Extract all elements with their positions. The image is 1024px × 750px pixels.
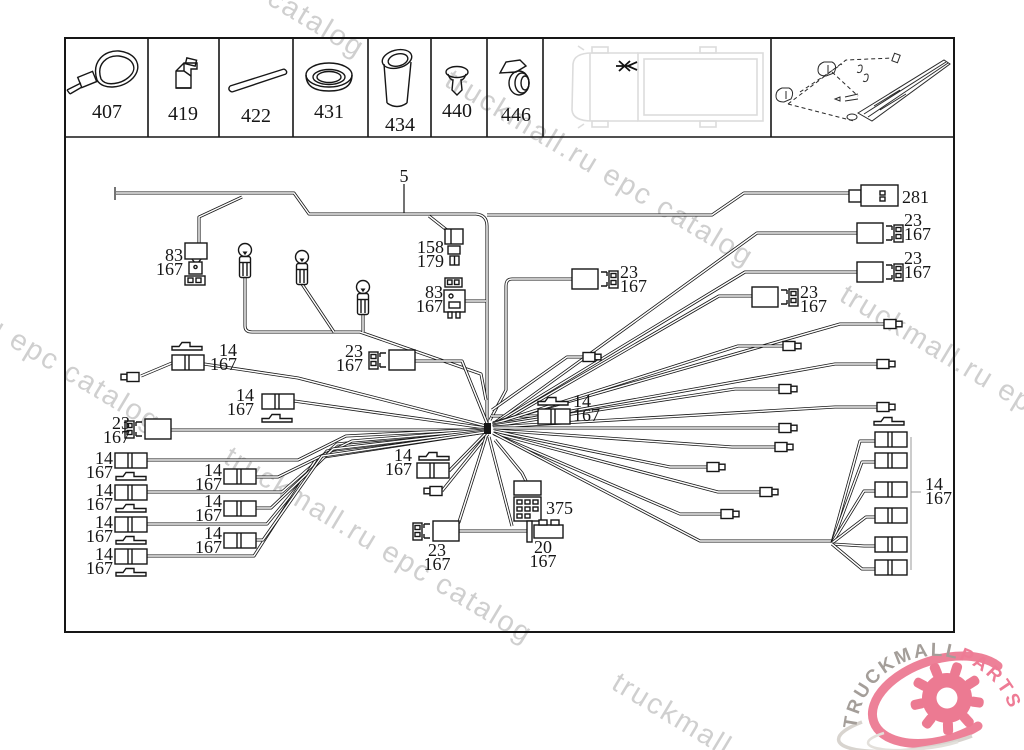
connector-14-167	[172, 355, 204, 370]
truck-top-view-icon	[572, 46, 763, 128]
bullet-terminal	[760, 488, 778, 497]
callout-14-167-l1: 14167	[86, 448, 113, 482]
connector-14-167	[417, 463, 449, 478]
connector-14-167	[875, 508, 907, 523]
part-cell-407: 407	[67, 51, 138, 123]
callout-158-179: 158179	[417, 237, 444, 271]
harness-location-mark	[616, 61, 637, 71]
connector-23-167	[369, 350, 415, 370]
callout-20-167: 20167	[530, 537, 557, 571]
callout-14-167-center: 14167	[227, 385, 254, 419]
bullet-terminal	[877, 360, 895, 369]
harness-connectors	[115, 185, 921, 576]
connector-14-167	[115, 517, 147, 532]
connector-14-167	[875, 537, 907, 552]
callout-14-167-l2: 14167	[86, 480, 113, 514]
callout-14-167-l4: 14167	[86, 544, 113, 578]
callout-23-167-left: 23167	[103, 413, 130, 447]
bullet-terminal	[424, 487, 442, 496]
connector-23-167	[572, 269, 618, 289]
connector-14-167	[224, 501, 256, 516]
connector-14-167	[224, 469, 256, 484]
part-number-419: 419	[168, 103, 198, 125]
clip-icon	[176, 58, 197, 88]
callout-281: 281	[902, 187, 929, 207]
part-cell-truck	[572, 46, 763, 128]
part-number-407: 407	[92, 101, 122, 123]
callout-14-167-m3: 14167	[195, 523, 222, 557]
bullet-terminal	[775, 443, 793, 452]
part-cell-434: 434	[380, 47, 415, 136]
connector-375	[514, 481, 541, 521]
connector-23-167	[857, 262, 903, 282]
connector-23-167	[752, 287, 798, 307]
callout-23-167-mid: 23167	[336, 341, 363, 375]
connector-23-167	[413, 521, 459, 541]
callout-14-167-upper-left: 14167	[210, 340, 237, 374]
part-number-422: 422	[241, 105, 271, 127]
connector-14-167	[538, 409, 570, 424]
grommet-clip-icon	[500, 60, 529, 95]
bullet-terminal	[721, 510, 739, 519]
bullet-terminal	[583, 353, 601, 362]
connector-83-167-right	[444, 278, 465, 318]
bullet-terminal	[877, 403, 895, 412]
sleeve-icon	[229, 69, 287, 92]
lock-flag	[116, 505, 146, 513]
floor-panel-sketch-icon	[776, 53, 950, 121]
lock-flag	[262, 415, 292, 423]
connector-83-167-left	[185, 243, 207, 285]
cable-tie-icon	[67, 51, 138, 94]
ring-terminal	[239, 244, 252, 278]
connector-14-167	[115, 549, 147, 564]
callout-375: 375	[546, 498, 573, 518]
callout-23-167-a: 23167	[904, 210, 931, 244]
watermark-text: truckmall.ru epc catalog	[834, 279, 1024, 489]
lock-flag	[419, 453, 449, 461]
connector-14-167	[115, 485, 147, 500]
connector-23-167	[125, 419, 171, 439]
watermark-text: truckmall.ru epc catalog	[0, 229, 167, 439]
bullet-terminal	[783, 342, 801, 351]
lock-flag	[172, 343, 202, 351]
connector-14-167	[115, 453, 147, 468]
ring-terminal	[357, 281, 370, 315]
callout-14-167-l3: 14167	[86, 512, 113, 546]
bullet-terminal	[779, 385, 797, 394]
lock-flag	[116, 473, 146, 481]
part-cell-422: 422	[229, 69, 287, 127]
watermark-text: truckmall.ru epc catalog	[50, 0, 370, 64]
connector-14-167	[875, 482, 907, 497]
bullet-terminal	[121, 373, 139, 382]
part-cell-419: 419	[168, 58, 198, 125]
callout-14-167-m1: 14167	[195, 460, 222, 494]
part-number-440: 440	[442, 100, 472, 122]
part-number-434: 434	[385, 114, 415, 136]
part-number-431: 431	[314, 101, 344, 123]
callout-83-167-right: 83167	[416, 282, 443, 316]
part-cell-panel	[776, 53, 950, 121]
connector-281	[849, 185, 898, 206]
connector-14-167	[224, 533, 256, 548]
callout-23-167-bottom: 23167	[424, 540, 451, 574]
watermark-text: truckmall.ru epc catalog	[218, 441, 538, 651]
callout-14-167-column: 14167	[925, 474, 952, 508]
callout-23-167-c: 23167	[800, 282, 827, 316]
grommet-icon	[306, 63, 352, 91]
boot-icon	[380, 47, 413, 107]
connector-158-179	[445, 229, 463, 265]
part-number-446: 446	[501, 104, 531, 126]
callout-83-167-left: 83167	[156, 245, 183, 279]
connector-14-167	[262, 394, 294, 409]
brand-logo: TRUCKMALLPARTS	[839, 640, 1024, 750]
part-cell-431: 431	[306, 63, 352, 123]
connector-14-167	[875, 432, 907, 447]
connector-14-167	[875, 560, 907, 575]
callout-14-167-hub-right: 14167	[573, 391, 600, 425]
bullet-terminal	[707, 463, 725, 472]
catalog-page: truckmall.ru epc catalog truckmall.ru ep…	[0, 0, 1024, 750]
callout-harness-5: 5	[400, 166, 409, 186]
callout-23-167-b: 23167	[904, 248, 931, 282]
callout-14-167-hub-left: 14167	[385, 445, 412, 479]
lock-flag	[116, 569, 146, 577]
bullet-terminal	[779, 424, 797, 433]
lock-flag	[116, 537, 146, 545]
lock-flag	[874, 418, 904, 426]
connector-23-167	[857, 223, 903, 243]
callout-14-167-m2: 14167	[195, 491, 222, 525]
callout-23-167-d: 23167	[620, 262, 647, 296]
ring-terminal	[296, 251, 309, 285]
bullet-terminal	[884, 320, 902, 329]
connector-14-167	[875, 453, 907, 468]
